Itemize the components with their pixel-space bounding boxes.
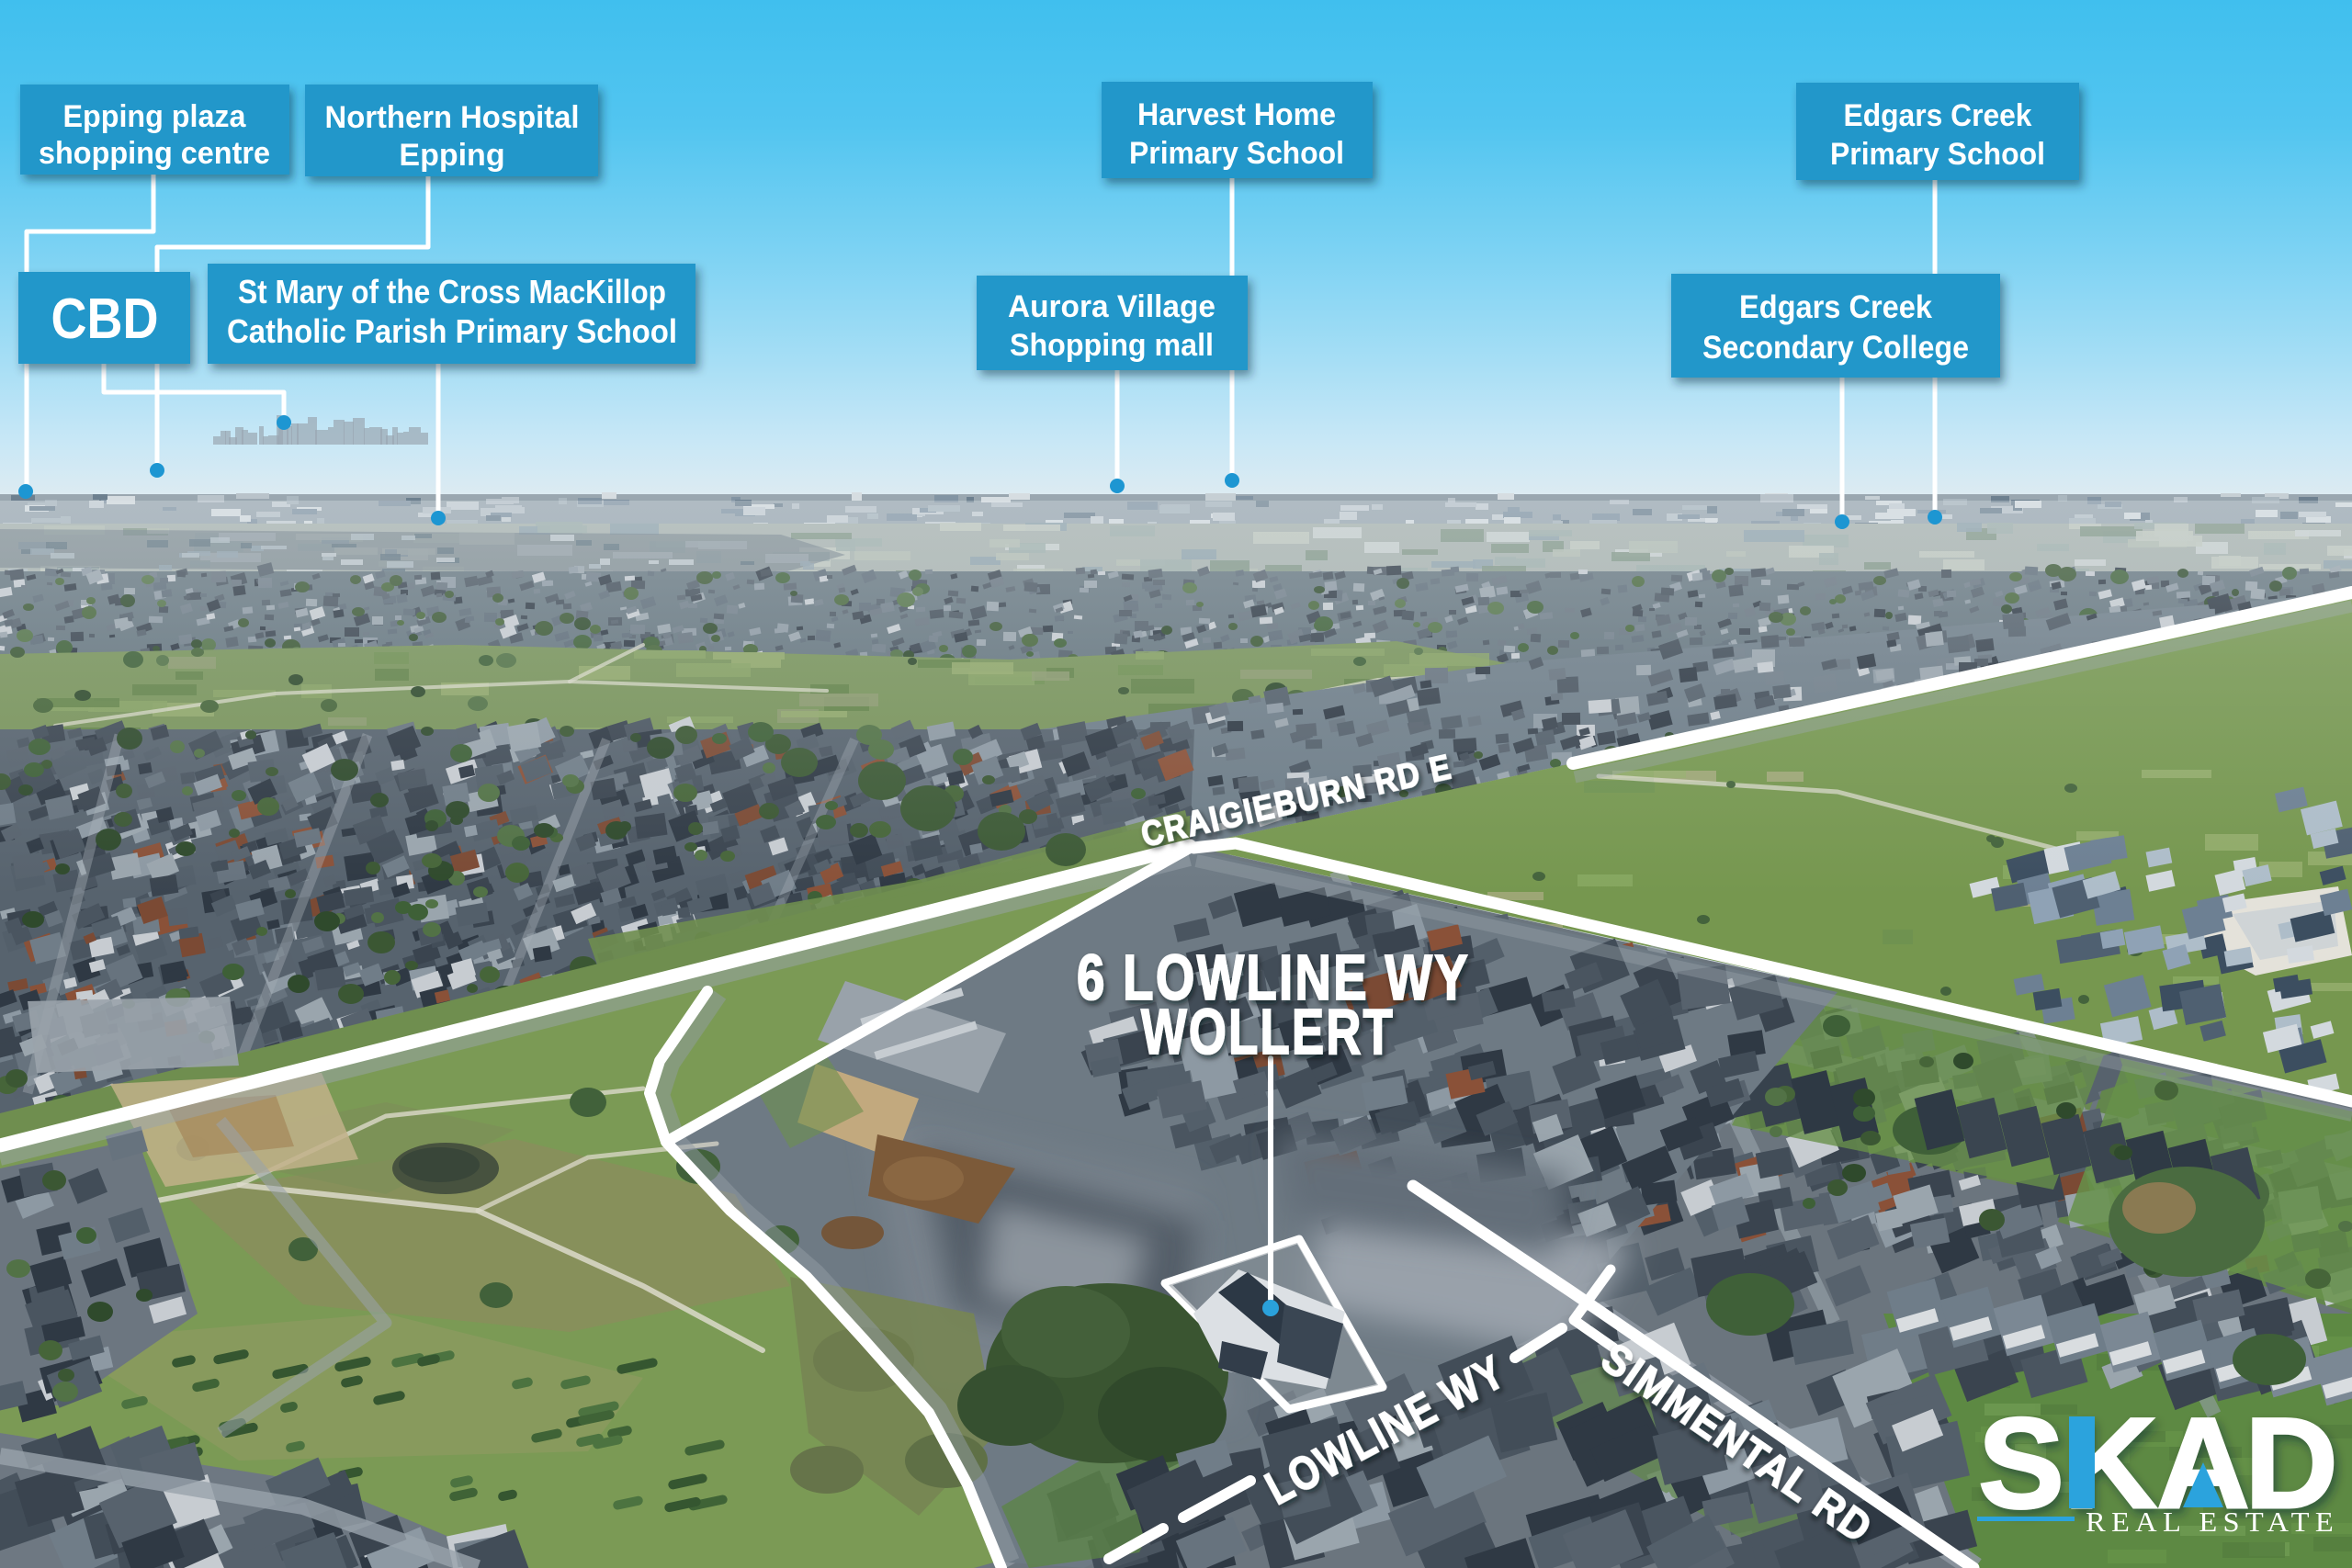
svg-text:St Mary of the Cross MacKillop: St Mary of the Cross MacKillop <box>238 273 666 310</box>
svg-text:REAL ESTATE: REAL ESTATE <box>2086 1506 2339 1538</box>
svg-text:S: S <box>1978 1391 2064 1535</box>
svg-text:Epping plaza: Epping plaza <box>63 99 247 134</box>
svg-text:Epping: Epping <box>399 138 504 173</box>
svg-text:WOLLERT: WOLLERT <box>1141 996 1395 1067</box>
svg-text:Catholic Parish Primary School: Catholic Parish Primary School <box>227 312 677 350</box>
svg-text:Northern Hospital: Northern Hospital <box>325 100 580 135</box>
svg-text:Edgars Creek: Edgars Creek <box>1739 289 1932 325</box>
svg-text:Secondary College: Secondary College <box>1702 330 1969 366</box>
svg-text:Harvest Home: Harvest Home <box>1137 97 1336 132</box>
svg-text:Shopping mall: Shopping mall <box>1010 328 1214 363</box>
svg-text:Edgars Creek: Edgars Creek <box>1844 98 2032 133</box>
svg-text:Aurora Village: Aurora Village <box>1008 289 1216 324</box>
svg-text:Primary School: Primary School <box>1129 136 1344 171</box>
svg-text:shopping centre: shopping centre <box>39 136 270 171</box>
svg-text:Primary School: Primary School <box>1830 137 2045 172</box>
svg-text:CBD: CBD <box>51 288 159 351</box>
